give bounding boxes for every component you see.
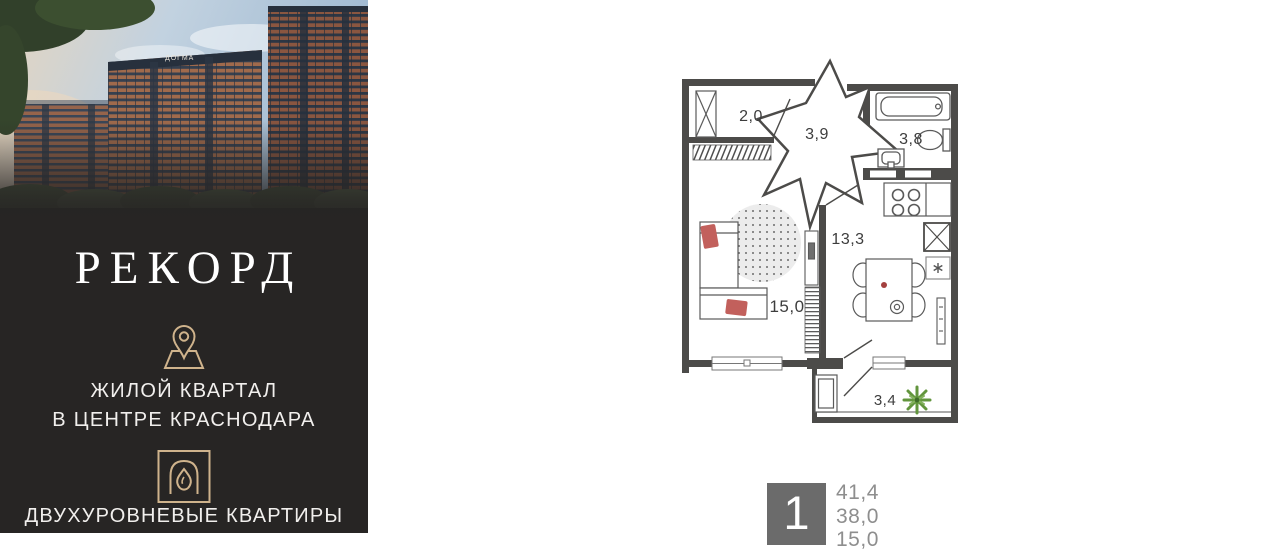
coat-rack [693,145,771,160]
location-pin-icon [153,318,215,379]
area-total: 41,4 [836,481,879,505]
floorplan: 2,0 3,9 3,8 13,3 15,0 3,4 [660,55,980,453]
plant-icon [904,387,930,413]
kitchen-balcony-window [873,357,905,369]
location-pin-art [153,318,215,374]
dining-table [853,259,925,321]
sofa-pillow [725,299,748,316]
label-kitchen: 13,3 [831,231,864,248]
balcony-door-leaf-out [844,367,872,396]
tv-unit [805,231,818,285]
tagline-line2: В ЦЕНТРЕ КРАСНОДАРА [52,409,315,431]
fireplace-frame [159,451,210,502]
unit-areas: 41,4 38,0 15,0 [836,481,879,552]
fireplace-art [156,448,213,505]
label-hallway: 3,9 [805,126,829,143]
tagline-line1: ЖИЛОЙ КВАРТАЛ [91,380,278,402]
photo-fade [0,120,368,222]
fridge-asterisk [934,263,943,273]
promo-panel: ДОГМА [0,0,368,533]
balcony [812,340,958,423]
living-window [712,357,782,370]
radiator [937,298,945,344]
flame [177,469,191,490]
balcony-door-leaf-in [844,340,872,358]
buildings-photo-art: ДОГМА [0,0,368,222]
buildings-photo: ДОГМА [0,0,368,222]
area-living: 15,0 [836,528,879,552]
brand-logo: РЕКОРД [0,241,368,295]
label-balcony: 3,4 [874,392,896,409]
table-decor-dot [881,282,887,288]
label-living-room: 15,0 [769,297,804,316]
wardrobe [805,287,820,353]
feature-caption: ДВУХУРОВНЕВЫЕ КВАРТИРЫ [0,505,368,528]
area-secondary: 38,0 [836,505,879,529]
building-sign: ДОГМА [165,55,194,62]
toilet-tank [943,129,950,151]
balcony-cabinet [815,375,837,412]
flame-inner [182,477,184,484]
fireplace-icon [156,448,213,510]
tagline: ЖИЛОЙ КВАРТАЛ В ЦЕНТРЕ КРАСНОДАРА [0,377,368,435]
label-bathroom: 3,8 [899,131,923,148]
rooms-count-badge: 1 [767,483,826,545]
pin-shape [174,326,195,358]
label-storage: 2,0 [739,108,763,125]
